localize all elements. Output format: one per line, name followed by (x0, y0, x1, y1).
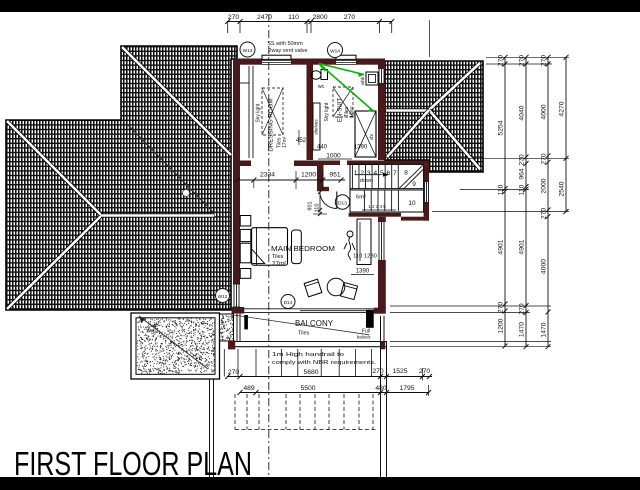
svg-text:2: 2 (360, 170, 364, 177)
svg-text:4000: 4000 (541, 259, 548, 274)
svg-text:270: 270 (228, 14, 240, 21)
svg-text:110 1280: 110 1280 (353, 254, 377, 260)
svg-text:110: 110 (498, 184, 505, 195)
svg-text:W13: W13 (243, 48, 253, 54)
svg-text:2800: 2800 (312, 14, 327, 21)
svg-text:2470: 2470 (257, 14, 272, 21)
svg-text:2540: 2540 (559, 181, 566, 196)
svg-text:964: 964 (519, 168, 526, 180)
svg-text:270: 270 (372, 368, 384, 375)
svg-text:1000: 1000 (326, 153, 341, 160)
svg-text:480: 480 (375, 385, 387, 392)
svg-text:D14: D14 (284, 300, 293, 306)
svg-text:1200: 1200 (498, 318, 505, 333)
svg-text:comply with NBR requirements.: comply with NBR requirements. (272, 360, 377, 366)
svg-text:4901: 4901 (519, 239, 526, 254)
svg-text:D13: D13 (338, 201, 347, 207)
svg-text:17m²: 17m² (282, 136, 288, 148)
svg-text:4040: 4040 (519, 105, 526, 120)
svg-text:270: 270 (344, 14, 356, 21)
svg-text:Sky light: Sky light (324, 102, 330, 122)
svg-text:6m²: 6m² (356, 195, 366, 201)
svg-text:5254: 5254 (498, 120, 505, 135)
svg-text:2334: 2334 (260, 172, 275, 179)
svg-text:270: 270 (498, 55, 505, 67)
svg-text:270: 270 (519, 55, 526, 67)
svg-text:1 2 3 4 5: 1 2 3 4 5 (368, 204, 386, 209)
svg-text:down: down (360, 178, 373, 184)
svg-text:EN-SUIT: EN-SUIT (338, 98, 344, 122)
svg-text:Tiles: Tiles (272, 254, 284, 260)
svg-text:balustr.: balustr. (357, 335, 372, 340)
svg-text:6: 6 (387, 170, 391, 177)
svg-text:270: 270 (228, 369, 240, 376)
svg-text:27m²: 27m² (272, 261, 286, 268)
svg-text:2000: 2000 (541, 178, 548, 193)
svg-text:SS with 50mm: SS with 50mm (267, 41, 303, 47)
svg-text:1390: 1390 (354, 145, 368, 151)
svg-text:1795: 1795 (399, 385, 414, 392)
svg-text:2way vent valve: 2way vent valve (268, 48, 307, 54)
svg-text:270: 270 (541, 55, 548, 67)
svg-text:3: 3 (367, 170, 371, 177)
svg-text:4270: 4270 (559, 101, 566, 116)
svg-text:270: 270 (541, 208, 548, 220)
svg-text:Tiles: Tiles (298, 331, 310, 337)
svg-text:110: 110 (288, 14, 299, 21)
svg-text:901: 901 (308, 201, 314, 210)
svg-text:270: 270 (419, 368, 431, 375)
svg-text:4901: 4901 (498, 239, 505, 254)
svg-text:whb: whb (360, 76, 365, 85)
svg-text:1390: 1390 (356, 269, 370, 275)
svg-text:440: 440 (317, 145, 328, 151)
svg-text:270: 270 (519, 303, 526, 315)
svg-text:4: 4 (373, 170, 377, 177)
svg-text:FIRST FLOOR PLAN: FIRST FLOOR PLAN (14, 445, 252, 482)
svg-text:MAIN BEDROOM: MAIN BEDROOM (271, 244, 335, 253)
svg-text:W12: W12 (218, 294, 228, 300)
svg-text:shr: shr (369, 133, 374, 140)
svg-text:1470: 1470 (519, 322, 526, 337)
svg-text:4000: 4000 (541, 104, 548, 119)
svg-text:wc: wc (318, 84, 325, 90)
svg-text:1200: 1200 (301, 172, 316, 179)
svg-text:7: 7 (393, 170, 397, 177)
svg-text:8: 8 (404, 170, 408, 177)
svg-text:10: 10 (408, 200, 416, 207)
svg-text:1: 1 (354, 170, 358, 177)
svg-text:1525: 1525 (392, 368, 407, 375)
svg-text:270: 270 (519, 154, 526, 166)
svg-text:W14: W14 (330, 49, 340, 55)
svg-text:slab: slab (148, 328, 156, 333)
svg-text:270: 270 (541, 153, 548, 165)
svg-text:489: 489 (243, 385, 255, 392)
svg-text:110: 110 (519, 184, 526, 195)
svg-text:5680: 5680 (303, 369, 318, 376)
svg-text:5500: 5500 (300, 385, 315, 392)
svg-text:Sky light: Sky light (256, 103, 262, 123)
svg-text:shelves: shelves (314, 119, 319, 135)
svg-text:452: 452 (296, 138, 307, 144)
svg-text:9: 9 (412, 181, 416, 188)
svg-text:951: 951 (329, 172, 341, 179)
svg-text:1470: 1470 (541, 322, 548, 337)
svg-text:270: 270 (498, 302, 505, 314)
svg-text:1m High handrail to: 1m High handrail to (272, 352, 344, 358)
